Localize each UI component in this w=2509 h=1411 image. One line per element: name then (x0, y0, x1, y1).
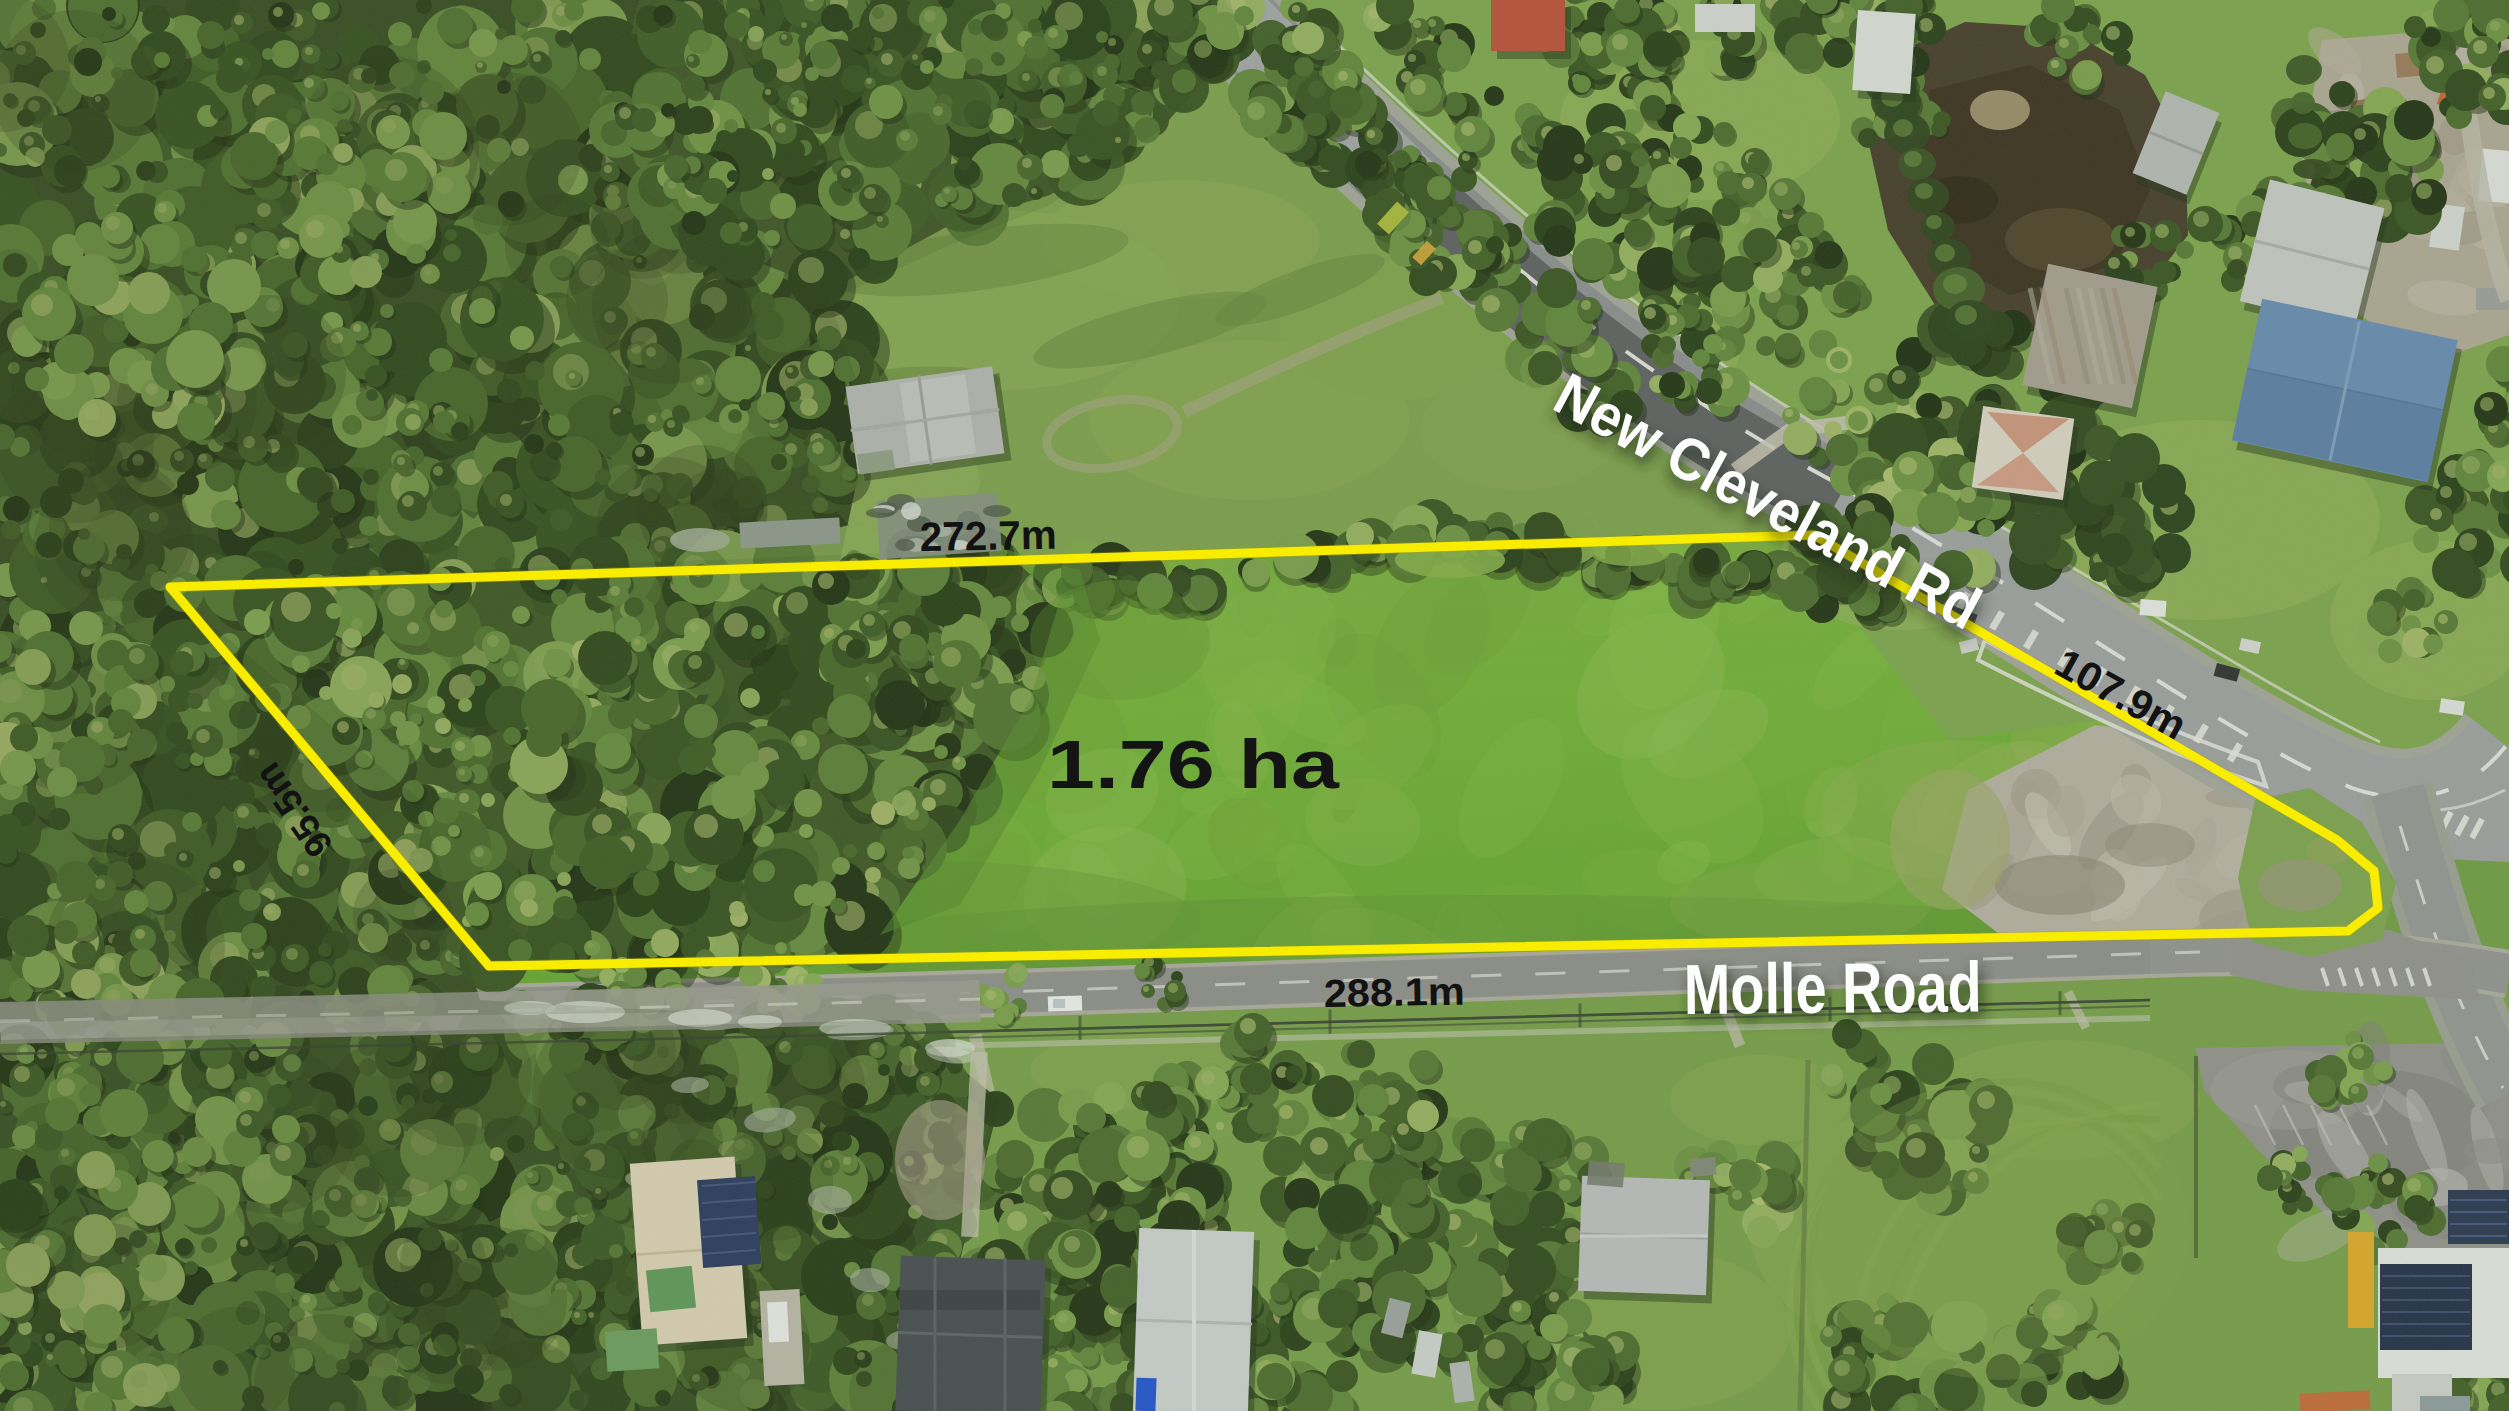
svg-text:288.1m: 288.1m (1323, 970, 1465, 1015)
svg-text:272.7m: 272.7m (919, 512, 1057, 560)
svg-text:Molle Road: Molle Road (1683, 947, 1982, 1029)
svg-text:1.76 ha: 1.76 ha (1047, 726, 1340, 803)
